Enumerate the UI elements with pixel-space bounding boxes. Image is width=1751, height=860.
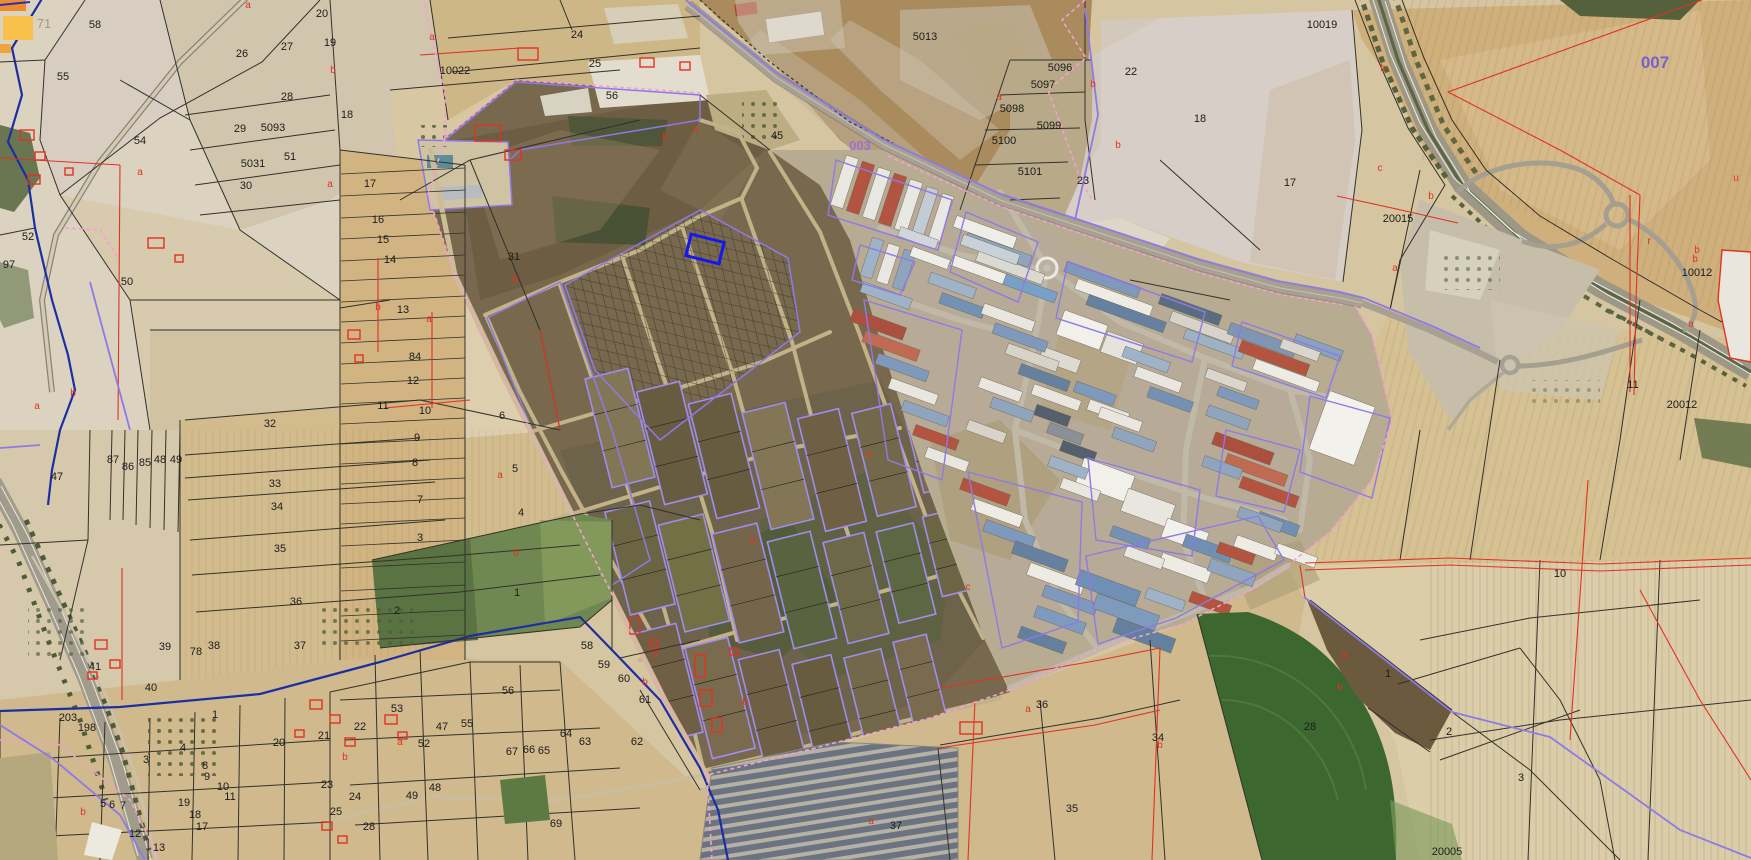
svg-text:a: a: [34, 401, 40, 412]
svg-text:a: a: [245, 0, 251, 11]
svg-text:11: 11: [1627, 379, 1638, 391]
svg-text:6: 6: [109, 799, 115, 811]
svg-text:23: 23: [1077, 175, 1089, 187]
svg-text:20005: 20005: [1432, 846, 1463, 858]
svg-text:a: a: [327, 179, 333, 190]
svg-text:11: 11: [224, 791, 235, 803]
svg-text:3: 3: [1518, 772, 1524, 784]
svg-text:2: 2: [394, 605, 400, 617]
svg-text:5097: 5097: [1031, 79, 1055, 91]
svg-text:a: a: [1392, 263, 1398, 274]
svg-text:7: 7: [417, 494, 423, 506]
svg-text:8: 8: [412, 457, 418, 469]
svg-text:2: 2: [1446, 726, 1452, 738]
svg-text:56: 56: [606, 90, 618, 102]
svg-text:18: 18: [341, 109, 353, 121]
svg-text:36: 36: [290, 596, 302, 608]
svg-text:b: b: [330, 65, 336, 76]
svg-text:35: 35: [274, 543, 286, 555]
svg-text:33: 33: [269, 478, 281, 490]
svg-text:55: 55: [461, 718, 473, 730]
svg-text:a: a: [866, 449, 872, 460]
svg-text:5101: 5101: [1018, 166, 1042, 178]
svg-text:52: 52: [418, 738, 430, 750]
svg-text:11: 11: [377, 400, 388, 412]
svg-text:9: 9: [204, 771, 210, 783]
svg-text:10022: 10022: [440, 65, 471, 77]
svg-text:b: b: [1428, 191, 1434, 202]
svg-text:13: 13: [397, 304, 409, 316]
svg-text:41: 41: [89, 661, 101, 673]
svg-text:a: a: [497, 470, 503, 481]
svg-text:7: 7: [120, 800, 126, 812]
svg-text:b: b: [1115, 140, 1121, 151]
svg-text:b: b: [70, 388, 76, 399]
svg-text:18: 18: [189, 809, 201, 821]
svg-text:5096: 5096: [1048, 62, 1072, 74]
svg-text:c: c: [1378, 163, 1383, 174]
svg-text:a: a: [1341, 650, 1347, 661]
svg-text:c: c: [966, 582, 971, 593]
svg-text:47: 47: [436, 721, 448, 733]
svg-text:78: 78: [190, 646, 202, 658]
svg-text:a: a: [1688, 319, 1694, 330]
svg-text:39: 39: [159, 641, 171, 653]
svg-text:47: 47: [51, 471, 63, 483]
svg-text:12: 12: [129, 828, 141, 840]
svg-text:51: 51: [284, 151, 296, 163]
svg-text:66: 66: [523, 744, 535, 756]
svg-text:a: a: [429, 32, 435, 43]
svg-text:16: 16: [372, 214, 384, 226]
svg-text:b: b: [342, 752, 348, 763]
svg-text:20: 20: [273, 737, 285, 749]
svg-text:a: a: [137, 167, 143, 178]
svg-text:b: b: [1337, 682, 1343, 693]
svg-text:4: 4: [180, 742, 186, 754]
svg-text:71: 71: [37, 16, 51, 31]
svg-text:32: 32: [264, 418, 276, 430]
svg-text:22: 22: [1125, 66, 1137, 78]
svg-text:5093: 5093: [261, 122, 285, 134]
svg-text:5: 5: [512, 463, 518, 475]
svg-text:64: 64: [560, 728, 572, 740]
svg-text:5100: 5100: [992, 135, 1016, 147]
svg-text:a: a: [652, 649, 658, 660]
svg-text:b: b: [1694, 245, 1700, 256]
svg-text:34: 34: [271, 501, 283, 513]
svg-text:63: 63: [579, 736, 591, 748]
svg-text:a: a: [426, 314, 432, 325]
svg-text:17: 17: [364, 178, 376, 190]
svg-text:21: 21: [318, 730, 330, 742]
svg-text:10: 10: [419, 405, 431, 417]
svg-text:61: 61: [639, 694, 651, 706]
svg-text:b: b: [662, 132, 668, 143]
svg-text:10012: 10012: [1682, 267, 1713, 279]
svg-text:25: 25: [589, 58, 601, 70]
svg-text:56: 56: [502, 685, 514, 697]
svg-text:23: 23: [321, 779, 333, 791]
svg-text:58: 58: [581, 640, 593, 652]
svg-text:50: 50: [121, 276, 133, 288]
svg-text:38: 38: [208, 640, 220, 652]
svg-text:24: 24: [349, 791, 361, 803]
svg-text:b: b: [375, 302, 381, 313]
svg-text:003: 003: [849, 138, 871, 153]
svg-text:b: b: [750, 535, 756, 546]
svg-text:54: 54: [134, 135, 146, 147]
svg-text:37: 37: [294, 640, 306, 652]
svg-text:b: b: [513, 548, 519, 559]
svg-text:37: 37: [890, 820, 902, 832]
svg-text:3: 3: [417, 532, 423, 544]
svg-text:31: 31: [508, 251, 520, 263]
svg-text:59: 59: [598, 659, 610, 671]
svg-text:60: 60: [618, 673, 630, 685]
svg-text:a: a: [692, 124, 698, 135]
svg-text:17: 17: [196, 821, 208, 833]
svg-text:1: 1: [1385, 668, 1391, 680]
svg-text:85: 85: [139, 457, 151, 469]
svg-text:24: 24: [571, 29, 583, 41]
svg-text:22: 22: [354, 721, 366, 733]
svg-text:13: 13: [153, 842, 165, 854]
svg-text:b: b: [512, 274, 518, 285]
svg-text:6: 6: [499, 410, 505, 422]
svg-text:86: 86: [122, 461, 134, 473]
svg-text:u: u: [1733, 173, 1739, 184]
svg-text:19: 19: [178, 797, 190, 809]
svg-text:b: b: [642, 677, 648, 688]
svg-text:3: 3: [143, 754, 149, 766]
svg-text:48: 48: [429, 782, 441, 794]
svg-text:45: 45: [771, 130, 783, 142]
svg-text:30: 30: [240, 180, 252, 192]
svg-text:17: 17: [1284, 177, 1296, 189]
svg-text:5: 5: [100, 798, 106, 810]
svg-text:10: 10: [1554, 568, 1566, 580]
svg-text:5099: 5099: [1037, 120, 1061, 132]
svg-text:9: 9: [414, 432, 420, 444]
svg-text:a: a: [397, 737, 403, 748]
svg-text:b: b: [742, 697, 748, 708]
svg-text:67: 67: [506, 746, 518, 758]
svg-text:a: a: [868, 816, 874, 827]
svg-text:62: 62: [631, 736, 643, 748]
svg-text:203: 203: [59, 712, 77, 724]
svg-text:26: 26: [236, 48, 248, 60]
svg-text:1: 1: [212, 709, 218, 721]
svg-text:5013: 5013: [913, 31, 937, 43]
svg-text:20015: 20015: [1383, 213, 1414, 225]
svg-text:36: 36: [1036, 699, 1048, 711]
svg-text:25: 25: [330, 806, 342, 818]
svg-text:40: 40: [145, 682, 157, 694]
svg-text:4: 4: [518, 507, 524, 519]
svg-text:28: 28: [281, 91, 293, 103]
svg-text:a: a: [996, 92, 1002, 103]
svg-text:10019: 10019: [1307, 19, 1338, 31]
svg-text:84: 84: [409, 351, 421, 363]
svg-text:28: 28: [363, 821, 375, 833]
svg-text:97: 97: [3, 259, 15, 271]
svg-text:29: 29: [234, 123, 246, 135]
svg-text:19: 19: [324, 37, 336, 49]
svg-text:b: b: [1090, 79, 1096, 90]
svg-text:18: 18: [1194, 113, 1206, 125]
svg-text:a: a: [1025, 704, 1031, 715]
svg-text:87: 87: [107, 454, 119, 466]
svg-text:5031: 5031: [241, 158, 265, 170]
svg-text:5098: 5098: [1000, 103, 1024, 115]
svg-text:49: 49: [170, 454, 182, 466]
svg-text:28: 28: [1304, 721, 1316, 733]
svg-text:52: 52: [22, 231, 34, 243]
svg-text:55: 55: [57, 71, 69, 83]
svg-text:198: 198: [78, 722, 96, 734]
svg-text:49: 49: [406, 790, 418, 802]
svg-text:65: 65: [538, 745, 550, 757]
svg-text:15: 15: [377, 234, 389, 246]
svg-text:14: 14: [384, 254, 396, 266]
svg-text:53: 53: [391, 703, 403, 715]
svg-text:58: 58: [89, 19, 101, 31]
svg-text:69: 69: [550, 818, 562, 830]
svg-text:48: 48: [154, 454, 166, 466]
svg-text:12: 12: [407, 375, 419, 387]
svg-text:b: b: [1157, 740, 1163, 751]
svg-text:27: 27: [281, 41, 293, 53]
svg-text:b: b: [80, 807, 86, 818]
svg-text:007: 007: [1641, 53, 1669, 72]
svg-text:20: 20: [316, 8, 328, 20]
svg-text:20012: 20012: [1667, 399, 1698, 411]
svg-text:35: 35: [1066, 803, 1078, 815]
svg-text:b: b: [1380, 63, 1386, 74]
svg-text:1: 1: [514, 587, 520, 599]
